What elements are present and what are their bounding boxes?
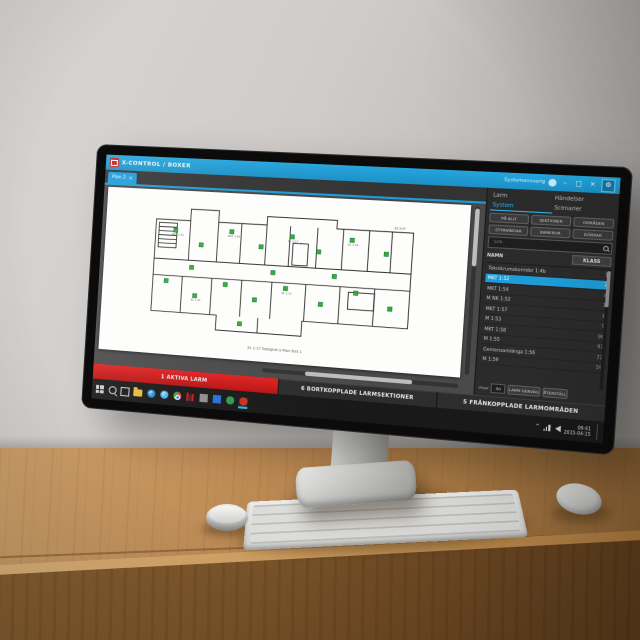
sensor-marker[interactable]: [283, 286, 287, 290]
plan-canvas-area: MKT 1:52 MKT 1:54 KL 1:12 KL 1:14 KL 1:2…: [94, 185, 486, 395]
document-area: Plan 2 ×: [94, 170, 487, 395]
sensor-marker[interactable]: [252, 298, 256, 302]
sensor-marker[interactable]: [290, 235, 295, 239]
sensor-labels: MKT 1:52 MKT 1:54 KL 1:12 KL 1:14 KL 1:2…: [168, 231, 359, 314]
filter-dorrar-button[interactable]: DÖRRAR: [572, 229, 613, 241]
sensor-marker[interactable]: [230, 230, 234, 234]
sensor-marker[interactable]: [318, 302, 323, 307]
ie-icon[interactable]: e: [159, 390, 169, 400]
sensor-list: Teknikrumskorridor 1:4b 1 MKT 1:52 2 MKT…: [479, 262, 611, 390]
larm-genvag-button[interactable]: LARM GENVÄG: [507, 385, 540, 397]
row-klass: 1: [589, 271, 608, 278]
filter-sektioner-button[interactable]: SEKTIONER: [531, 215, 572, 227]
floor-plan-svg: MKT 1:52 MKT 1:54 KL 1:12 KL 1:14 KL 1:2…: [98, 187, 471, 378]
row-klass: 1: [587, 302, 606, 309]
row-klass: 96: [585, 333, 604, 340]
sensor-marker[interactable]: [384, 252, 389, 257]
sensor-marker[interactable]: [164, 278, 168, 282]
sensor-marker[interactable]: [387, 307, 392, 312]
system-tray: ^ 09:41 2015-04-15: [535, 419, 601, 440]
plan-caption: KL 1:17 Fastighet o Plan Text 1: [247, 346, 301, 354]
plan-tab-close-icon[interactable]: ×: [128, 175, 133, 181]
minimize-button[interactable]: –: [560, 179, 571, 187]
tray-network-icon[interactable]: [543, 424, 551, 431]
monitor-bezel: X-CONTROL / BOXER Systemansvarig – □ × ⚙…: [81, 144, 633, 455]
sensor-marker[interactable]: [193, 294, 197, 298]
tray-volume-icon[interactable]: [555, 425, 561, 432]
column-klass[interactable]: KLASS: [572, 255, 612, 267]
row-klass: 6: [587, 312, 606, 319]
tray-chevron-icon[interactable]: ^: [535, 424, 540, 430]
sensor-markers: [162, 226, 397, 337]
row-klass: 2: [589, 281, 608, 288]
screen: X-CONTROL / BOXER Systemansvarig – □ × ⚙…: [91, 155, 620, 444]
filter-kameror-button[interactable]: KAMEROR: [530, 227, 571, 239]
side-panel: Larm Händelser System Scenarier PÅ ALLT …: [473, 188, 619, 406]
floor-plan[interactable]: MKT 1:52 MKT 1:54 KL 1:12 KL 1:14 KL 1:2…: [98, 187, 471, 378]
active-app-icon[interactable]: [238, 396, 248, 406]
row-klass: 97: [585, 343, 604, 350]
sensor-marker[interactable]: [189, 265, 193, 269]
row-klass: 72: [584, 353, 603, 360]
close-button[interactable]: ×: [587, 181, 598, 189]
filter-omraden-button[interactable]: OMRÅDEN: [573, 217, 614, 229]
sensor-marker[interactable]: [350, 238, 355, 242]
filter-styrningar-button[interactable]: STYRNINGAR: [488, 224, 528, 236]
sensor-label: KL 1:21: [191, 298, 201, 303]
sensor-marker[interactable]: [316, 250, 321, 254]
sensor-marker[interactable]: [199, 243, 203, 247]
sensor-label: KL 1:14: [348, 242, 359, 247]
alarm-app-icon[interactable]: [185, 392, 195, 402]
sensor-label: MKT 1:54: [228, 234, 241, 239]
sensor-label: KL 1:32: [281, 291, 292, 296]
page-size-box[interactable]: 50: [491, 383, 506, 394]
maximize-button[interactable]: □: [573, 180, 584, 188]
surface-dial: [206, 504, 248, 531]
file-explorer-icon[interactable]: [133, 387, 142, 397]
taskbar-clock[interactable]: 09:41 2015-04-15: [564, 424, 592, 437]
visar-label: Visar: [478, 384, 489, 390]
sensor-label: MKT 1:52: [172, 232, 185, 237]
sensor-marker[interactable]: [271, 270, 275, 274]
sensor-marker[interactable]: [237, 322, 241, 326]
clock-date: 2015-04-15: [564, 429, 591, 437]
app-icon-gray[interactable]: [198, 393, 208, 403]
column-namn[interactable]: NAMN: [487, 252, 570, 262]
user-label: Systemansvarig: [504, 178, 545, 185]
monitor-stand-base: [295, 460, 417, 508]
plan-tab[interactable]: Plan 2 ×: [108, 172, 137, 184]
search-icon: [603, 246, 609, 252]
edge-icon[interactable]: e: [146, 389, 156, 399]
task-view-icon[interactable]: [120, 386, 129, 396]
user-avatar-icon[interactable]: [548, 179, 557, 187]
row-klass: 59: [583, 364, 602, 371]
plan-note: 62 KVT: [394, 226, 406, 231]
settings-button[interactable]: ⚙: [601, 178, 616, 192]
chrome-icon[interactable]: [172, 391, 182, 401]
sensor-marker[interactable]: [223, 282, 227, 286]
sensor-marker[interactable]: [353, 291, 358, 296]
app-logo-icon: [110, 158, 119, 167]
sensor-label: KL 1:12: [288, 239, 299, 244]
plan-tab-label: Plan 2: [112, 175, 126, 181]
aterstall-button[interactable]: ÅTERSTÄLL: [542, 387, 568, 399]
vertical-scrollbar-thumb[interactable]: [472, 209, 480, 267]
row-klass: 4: [588, 292, 607, 299]
start-button[interactable]: [95, 384, 104, 394]
sensor-marker[interactable]: [259, 245, 263, 249]
app-icon-blue[interactable]: [212, 394, 222, 404]
tab-scenarier[interactable]: Scenarier: [552, 204, 616, 217]
show-desktop-button[interactable]: [596, 424, 601, 440]
app-icon-green[interactable]: [225, 395, 235, 405]
app-title: X-CONTROL / BOXER: [122, 160, 191, 169]
sensor-marker[interactable]: [332, 274, 337, 278]
taskbar-search-icon[interactable]: [107, 385, 116, 395]
sensor-marker[interactable]: [174, 228, 178, 232]
row-klass: 9: [586, 322, 605, 329]
floor-plan-walls: [150, 207, 415, 344]
tab-system[interactable]: System: [490, 201, 552, 214]
surface-dial-top: [209, 506, 245, 523]
filter-pa-allt-button[interactable]: PÅ ALLT: [489, 213, 529, 225]
